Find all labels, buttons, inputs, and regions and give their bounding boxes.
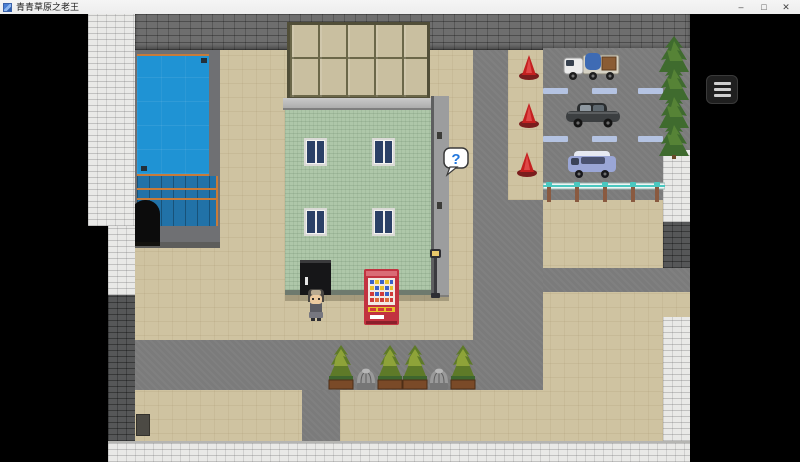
traffic-cone	[518, 54, 540, 80]
van	[567, 148, 617, 180]
road-horizontal-right	[543, 268, 690, 292]
stone-post	[136, 414, 150, 436]
sedan	[565, 100, 621, 130]
dark-wall-right	[663, 222, 690, 268]
traffic-cone	[518, 102, 540, 128]
planter-tree	[450, 344, 476, 390]
building-window	[304, 208, 327, 236]
parking-marker	[592, 136, 617, 142]
dark-wall-left	[108, 295, 135, 441]
minimize-button[interactable]: –	[730, 0, 752, 14]
white-wall-right	[663, 150, 690, 222]
game-app-icon	[3, 3, 12, 12]
traffic-cone	[516, 151, 538, 177]
parking-marker	[543, 136, 568, 142]
hamburger-icon	[714, 94, 731, 97]
greenhouse-glass-roof	[287, 22, 430, 100]
vending-machine[interactable]	[364, 269, 399, 325]
building-window	[372, 138, 395, 166]
building-window	[304, 138, 327, 166]
planter-tree	[377, 344, 403, 390]
pool-water	[137, 54, 209, 176]
svg-text:?: ?	[451, 151, 460, 168]
player-character[interactable]	[305, 287, 327, 322]
arched-doorway	[131, 200, 160, 246]
menu-button[interactable]	[706, 75, 738, 104]
white-wall-bottom	[108, 441, 690, 462]
door-handle	[305, 277, 308, 285]
parking-marker	[592, 88, 617, 94]
wall-vent	[437, 202, 442, 209]
question-balloon[interactable]: ?	[443, 147, 469, 177]
building-cornice	[283, 98, 435, 110]
cypress-tree	[658, 119, 690, 159]
stone-well	[355, 367, 377, 391]
title-bar: 青青草原之老王 – □ ✕	[0, 0, 800, 14]
parking-marker	[543, 88, 568, 94]
window-title: 青青草原之老王	[16, 0, 79, 14]
app-window: 青青草原之老王 – □ ✕	[0, 0, 800, 462]
close-button[interactable]: ✕	[775, 0, 797, 14]
pool-ladder	[201, 58, 207, 63]
street-lamp	[424, 247, 446, 301]
truck	[563, 50, 621, 82]
planter-tree	[402, 344, 428, 390]
hamburger-icon	[714, 82, 731, 85]
wall-vent	[437, 132, 442, 139]
road-vertical-bottom	[302, 390, 340, 441]
hamburger-icon	[714, 88, 731, 91]
stone-well	[428, 367, 450, 391]
maximize-button[interactable]: □	[753, 0, 775, 14]
white-wall-left	[88, 14, 135, 226]
game-viewport[interactable]: ?	[88, 14, 690, 462]
white-wall-right-lower	[663, 317, 690, 441]
guard-rail	[543, 178, 665, 204]
map-edge-black	[88, 226, 108, 462]
pool-ladder	[141, 166, 147, 171]
white-wall-left-lower	[108, 226, 135, 295]
pool-shadow	[135, 242, 220, 248]
building-window	[372, 208, 395, 236]
planter-tree	[328, 344, 354, 390]
